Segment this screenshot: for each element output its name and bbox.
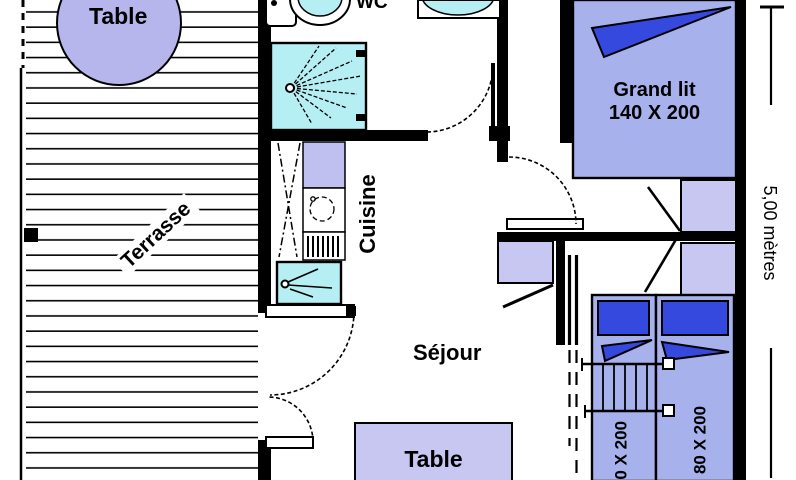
ladder-foot (663, 358, 674, 369)
kitchen-cabinet (303, 142, 345, 188)
opening-mark-upper (648, 187, 680, 231)
single-bed-left-size-label: 80 X 200 (613, 421, 630, 480)
wall-middle-horizontal (497, 232, 746, 241)
shower-head (286, 84, 294, 92)
cabinet (498, 241, 553, 283)
single-bed-right-size-label: 80 X 200 (692, 406, 709, 474)
pillow-right (662, 301, 728, 335)
floor-plan-drawing (0, 0, 796, 480)
wc-label: WC (356, 0, 388, 12)
kitchen-block (277, 142, 345, 304)
bedroom (573, 0, 736, 296)
double-bed-size-label: 140 X 200 (573, 103, 736, 123)
kitchen-hob-unit (303, 188, 345, 232)
living-room-label: Séjour (413, 342, 481, 364)
shower-wall-stub (356, 50, 367, 57)
shower-wall-stub (356, 114, 367, 121)
bedroom-door-swing (509, 157, 576, 224)
pillow-left (598, 301, 649, 335)
grill-lines (308, 236, 338, 257)
terrace-door-swing-large (270, 311, 354, 395)
dining-table-label: Table (355, 448, 512, 471)
nightstand-upper (681, 180, 736, 232)
ladder-foot (663, 405, 674, 416)
terrace-table-label: Table (89, 5, 147, 28)
bedroom-door-leaf (507, 219, 583, 229)
terrace-door-swing-small (268, 397, 313, 442)
dimension-label: 5,00 mètres (761, 185, 779, 280)
wall-bunk-left (556, 240, 565, 345)
terrace-post (24, 228, 38, 242)
sink-drain (282, 281, 289, 288)
bathroom-door-swing (427, 65, 493, 132)
floor-plan: Table Terrasse WC Cuisine Séjour Table G… (0, 0, 796, 480)
opening-mark-lower (645, 236, 678, 292)
kitchen-label: Cuisine (357, 174, 379, 253)
wall-bathroom-right (497, 0, 508, 162)
double-bed-label: Grand lit (573, 80, 736, 100)
wall-bathroom-bottom (258, 130, 428, 141)
wall-terrace-upper (258, 0, 271, 313)
bathroom (266, 0, 500, 130)
terrace-door-leaf-large (266, 305, 354, 317)
terrace-door-leaf-small (266, 437, 313, 448)
cabinet-door-leaf (503, 285, 553, 307)
appliance-reservation-cross (278, 143, 300, 257)
nightstand-lower (681, 243, 736, 296)
toilet-button (271, 0, 277, 6)
